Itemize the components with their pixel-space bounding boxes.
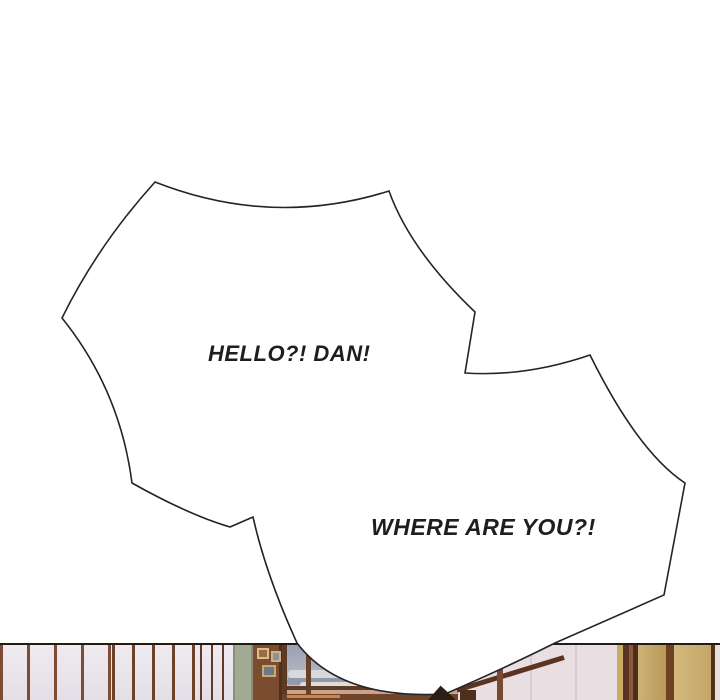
speech-bubble-outline [62,182,685,695]
speech-text-1: HELLO?! DAN! [208,341,370,367]
comic-panel: HELLO?! DAN! WHERE ARE YOU?! [0,0,720,700]
speech-text-2: WHERE ARE YOU?! [371,514,596,541]
